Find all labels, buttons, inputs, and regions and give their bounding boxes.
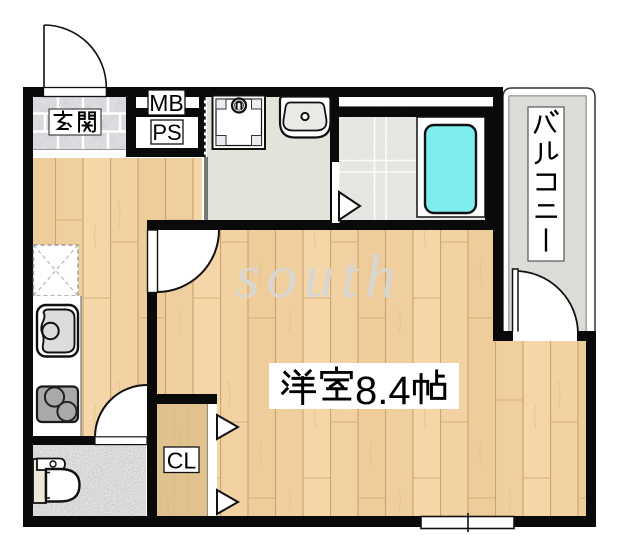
svg-text:PS: PS [152,120,181,145]
svg-text:CL: CL [167,448,197,474]
svg-text:south: south [236,244,402,311]
svg-text:MB: MB [149,90,184,116]
svg-text:8.4: 8.4 [355,369,411,413]
